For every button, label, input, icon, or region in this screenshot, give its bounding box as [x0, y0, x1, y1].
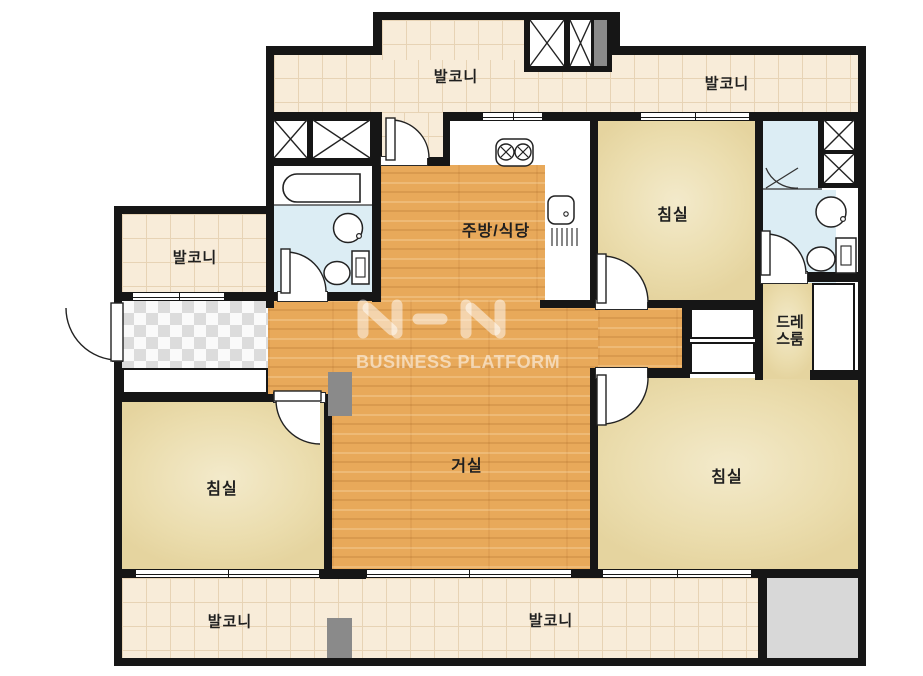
closet-x-icon [274, 20, 854, 183]
dressroom-label-line2: 스룸 [776, 331, 804, 348]
sink-icon [816, 197, 846, 227]
room-label-bedroom-top-right: 침실 [657, 201, 688, 225]
floorplan: BUSINESS PLATFORM 발코니 발코니 발코니 발코니 발코니 주방… [0, 0, 923, 676]
room-label-dressroom: 드레 스룸 [776, 314, 804, 349]
room-label-living: 거실 [451, 452, 482, 476]
room-label-bedroom-bottom-right: 침실 [711, 463, 742, 487]
room-label-bedroom-bottom-left: 침실 [206, 475, 237, 499]
room-label-balcony-left: 발코니 [173, 247, 217, 268]
kitchen-sink-icon [548, 196, 577, 246]
dressroom-label-line1: 드레 [776, 314, 804, 331]
watermark: BUSINESS PLATFORM [356, 297, 566, 373]
room-label-kitchen: 주방/식당 [462, 217, 530, 241]
toilet-icon [807, 238, 856, 273]
bathtub-icon [283, 174, 360, 202]
room-label-balcony-top-right: 발코니 [705, 73, 749, 94]
room-label-balcony-bottom-left: 발코니 [208, 611, 252, 632]
toilet-icon [324, 251, 369, 285]
door-swing [66, 118, 806, 444]
sink-icon [334, 214, 363, 243]
room-label-balcony-top-left: 발코니 [434, 66, 478, 87]
nhn-logo-icon [356, 297, 516, 341]
stove-icon [496, 139, 533, 166]
room-label-balcony-bottom-center: 발코니 [529, 610, 573, 631]
watermark-tagline: BUSINESS PLATFORM [356, 352, 566, 373]
